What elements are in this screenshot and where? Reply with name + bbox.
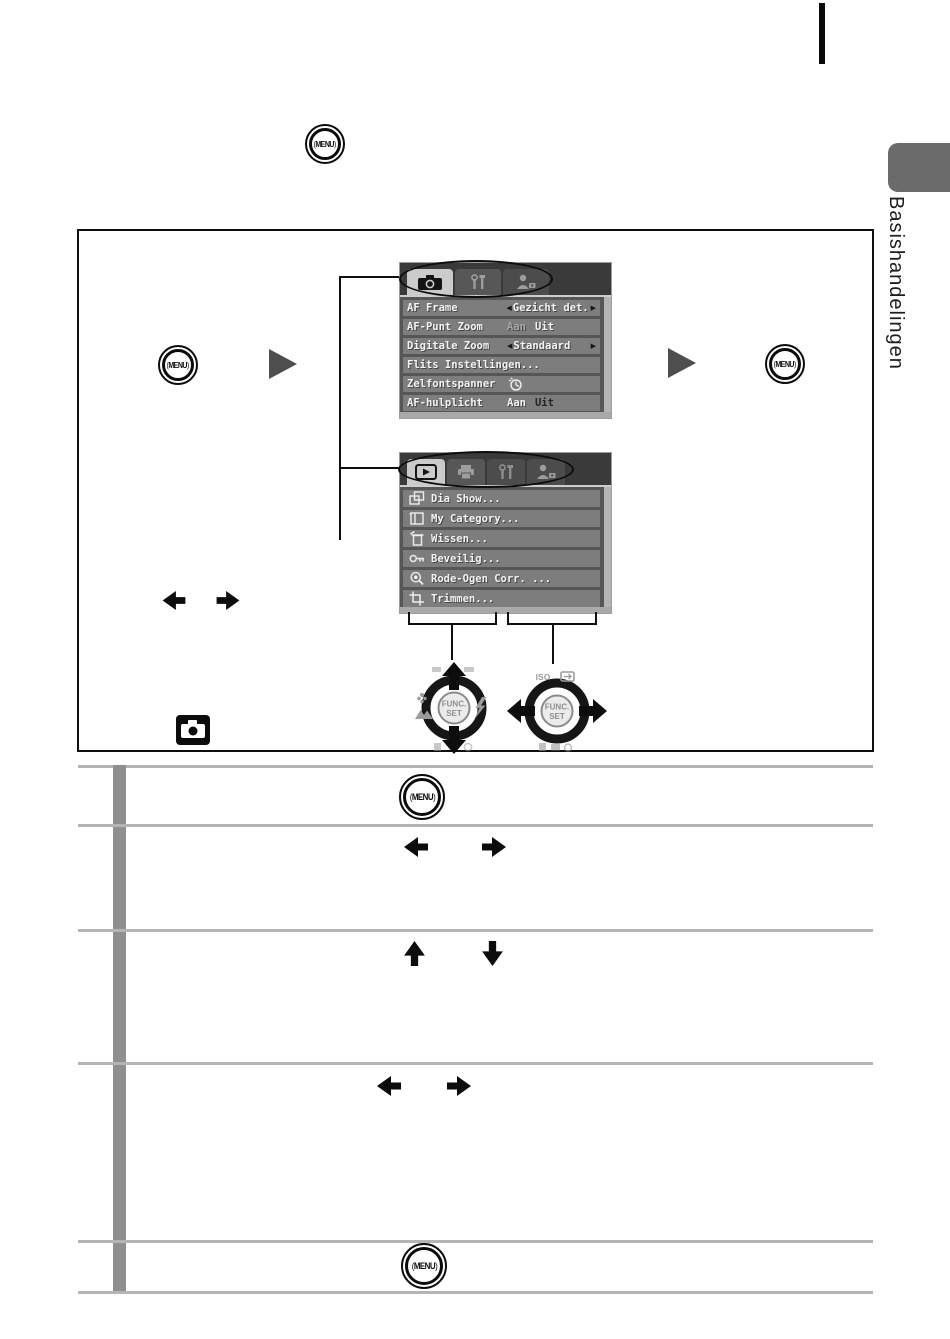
lcd-scrollbar <box>604 487 611 607</box>
connector-line-top <box>339 276 401 278</box>
step-separator-line <box>78 1062 873 1065</box>
arrow-right-icon <box>482 836 506 858</box>
protect-key-icon <box>409 551 425 566</box>
menu-row: Digitale Zoom ◀ Standaard ▶ <box>403 338 600 354</box>
menu-row-label: My Category... <box>431 513 520 525</box>
menu-row: AF-Punt Zoom Aan Uit <box>403 319 600 335</box>
page-edge-bar <box>819 3 825 64</box>
set-label: SET <box>549 712 565 721</box>
menu-row-label: AF Frame <box>407 302 506 314</box>
menu-button-inner-ring: MENU <box>162 349 194 381</box>
arrow-left-icon <box>377 1075 401 1097</box>
left-select-icon: ◀ <box>506 305 511 312</box>
iso-label: ISO <box>536 672 551 682</box>
erase-icon <box>409 531 425 546</box>
menu-row-value: ◀ Standaard ▶ <box>507 340 596 352</box>
func-label: FUNC. <box>545 703 569 712</box>
menu-button-label: MENU <box>409 792 434 802</box>
set-label: SET <box>446 709 462 718</box>
slideshow-icon <box>409 491 425 506</box>
option-aan: Aan <box>507 321 526 333</box>
menu-button-inner-ring: MENU <box>403 778 441 816</box>
menu-row-value-text: Standaard <box>513 340 570 352</box>
right-select-icon: ▶ <box>591 305 596 312</box>
connector-line-vertical <box>339 276 341 540</box>
bracket-stem <box>552 624 554 664</box>
func-set-dial-updown: FUNC. SET <box>412 661 496 755</box>
chapter-title: Basishandelingen <box>884 196 907 416</box>
menu-button-inner-ring: MENU <box>405 1247 443 1285</box>
flow-arrow-icon <box>668 348 696 378</box>
self-timer-icon <box>507 377 523 391</box>
arrow-down-icon <box>482 941 503 966</box>
left-select-icon: ◀ <box>507 343 512 350</box>
menu-row-label: Zelfontspanner <box>407 378 507 390</box>
trim-icon <box>409 591 425 606</box>
menu-button-icon: MENU <box>305 124 345 164</box>
menu-row-label: Rode-Ogen Corr. ... <box>431 573 551 585</box>
step-separator-line <box>78 929 873 932</box>
option-uit: Uit <box>535 321 554 333</box>
menu-row-value: Aan Uit <box>507 397 596 409</box>
step-separator-line <box>78 765 873 768</box>
arrow-right-icon <box>216 591 240 610</box>
menu-button-icon: MENU <box>765 344 805 384</box>
record-mode-icon <box>176 715 210 745</box>
menu-row-label: Digitale Zoom <box>407 340 507 352</box>
menu-row: Dia Show... <box>403 490 600 507</box>
chapter-tab <box>888 143 950 192</box>
arrow-left-icon <box>162 591 186 610</box>
menu-row: Flits Instellingen... <box>403 357 600 373</box>
option-aan: Aan <box>507 397 526 409</box>
menu-row: Trimmen... <box>403 590 600 607</box>
step-separator-line <box>78 1240 873 1243</box>
menu-row-label: AF-Punt Zoom <box>407 321 507 333</box>
menu-button-label: MENU <box>411 1261 436 1271</box>
lcd-scrollbar <box>604 297 611 412</box>
menu-button-inner-ring: MENU <box>309 128 341 160</box>
menu-row-value: Aan Uit <box>507 321 596 333</box>
menu-row-label: AF-hulplicht <box>407 397 507 409</box>
menu-row: Rode-Ogen Corr. ... <box>403 570 600 587</box>
manual-page: MENU Basishandelingen MENU MENU <box>0 0 950 1339</box>
menu-button-inner-ring: MENU <box>769 348 801 380</box>
menu-button-icon: MENU <box>158 345 198 385</box>
menu-row: My Category... <box>403 510 600 527</box>
menu-row-label: Beveilig... <box>431 553 501 565</box>
arrow-up-icon <box>404 941 425 966</box>
arrow-left-icon <box>404 836 428 858</box>
menu-row-label: Wissen... <box>431 533 488 545</box>
menu-row: Zelfontspanner <box>403 376 600 392</box>
arrow-right-icon <box>447 1075 471 1097</box>
menu-row: AF Frame ◀ Gezicht det. ▶ <box>403 300 600 316</box>
lcd-bottom-strip <box>400 412 611 418</box>
menu-row: AF-hulplicht Aan Uit <box>403 395 600 411</box>
step-separator-line <box>78 1291 873 1294</box>
bracket-stem <box>451 624 453 660</box>
menu-row-label: Trimmen... <box>431 593 494 605</box>
menu-button-label: MENU <box>314 140 336 149</box>
red-eye-icon <box>409 571 425 586</box>
menu-row-label: Flits Instellingen... <box>407 359 540 371</box>
category-icon <box>409 511 425 526</box>
record-tabs-callout-ellipse <box>399 260 553 298</box>
menu-row-value-text: Gezicht det. <box>513 302 589 314</box>
func-set-dial-leftright: ISO FUNC. SET <box>505 667 609 755</box>
menu-row-label: Dia Show... <box>431 493 501 505</box>
func-label: FUNC. <box>442 700 466 709</box>
menu-button-label: MENU <box>774 360 796 369</box>
flow-arrow-icon <box>269 349 297 379</box>
option-uit: Uit <box>535 397 554 409</box>
connector-line-middle <box>339 467 400 469</box>
menu-row-value <box>507 377 596 391</box>
menu-button-icon: MENU <box>399 774 445 820</box>
menu-row-value: ◀ Gezicht det. ▶ <box>506 302 596 314</box>
play-tabs-callout-ellipse <box>398 451 574 488</box>
record-menu-list: AF Frame ◀ Gezicht det. ▶ AF-Punt Zoom A… <box>400 297 611 412</box>
right-select-icon: ▶ <box>591 343 596 350</box>
menu-row: Wissen... <box>403 530 600 547</box>
menu-row: Beveilig... <box>403 550 600 567</box>
menu-button-label: MENU <box>167 361 189 370</box>
play-menu-list: Dia Show... My Category... Wissen... <box>400 487 611 607</box>
step-indicator-bar <box>113 765 126 1294</box>
menu-button-icon: MENU <box>401 1243 447 1289</box>
step-separator-line <box>78 824 873 827</box>
